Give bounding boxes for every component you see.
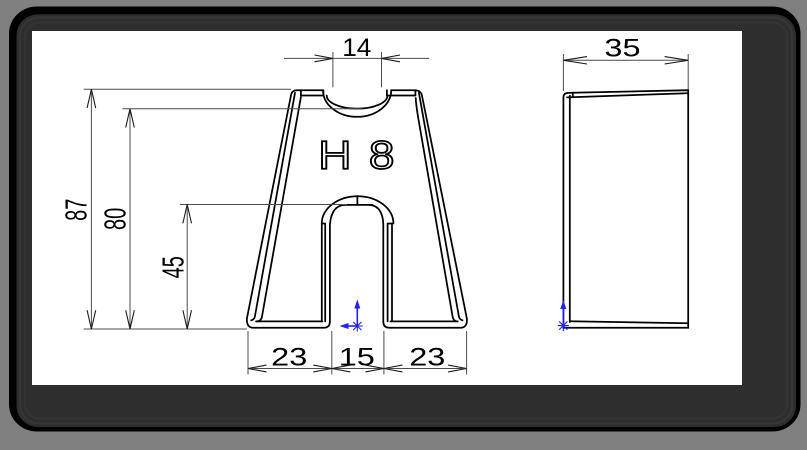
svg-text:23: 23 [271,344,307,372]
svg-text:35: 35 [604,35,640,63]
svg-text:H 8: H 8 [318,133,396,178]
svg-text:80: 80 [99,208,132,230]
svg-text:23: 23 [409,344,445,372]
svg-text:14: 14 [342,35,371,62]
svg-text:87: 87 [60,199,93,221]
svg-text:45: 45 [157,256,190,278]
svg-text:15: 15 [339,344,375,372]
